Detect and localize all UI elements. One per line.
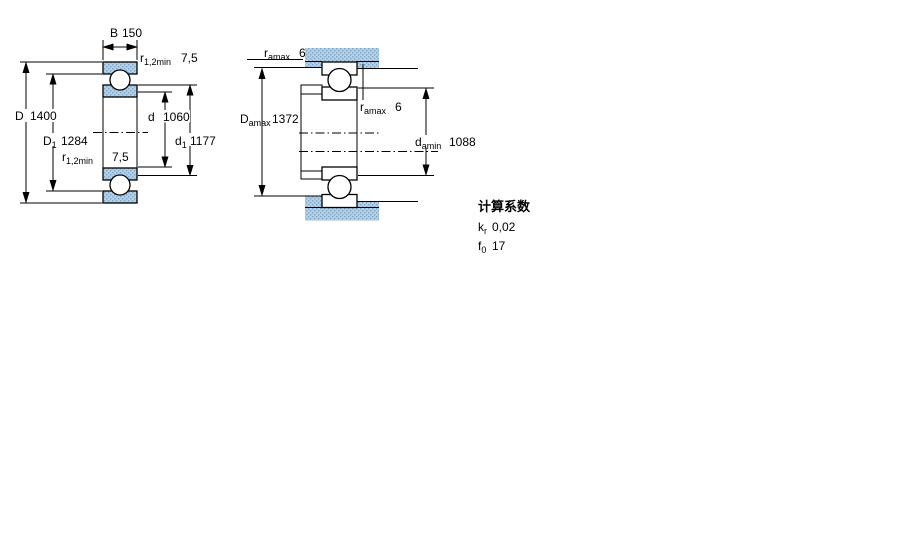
bearing-drawing-canvas: B 150 r1,2min 7,5 D 1400 D1 1284 d 1060 …	[0, 0, 900, 560]
value-D: 1400	[30, 109, 57, 123]
ball-top-right	[328, 69, 351, 92]
value-r12min-bottom: 7,5	[112, 150, 129, 164]
label-ramax-top: ramax	[264, 46, 291, 62]
right-diagram-abutment: ramax 6 Damax 1372 ramax 6 damin 1088	[240, 46, 476, 221]
bearing-rings-left	[93, 62, 148, 203]
label-r12min-top: r1,2min	[140, 51, 171, 67]
value-ramax-top: 6	[299, 46, 306, 60]
factor-f0-label: f0	[478, 239, 486, 255]
housing-bottom-left-step	[305, 196, 322, 208]
factor-kr-label: kr	[478, 220, 487, 236]
housing-top-left-step	[305, 62, 322, 68]
label-D: D	[15, 109, 24, 123]
value-d1: 1177	[190, 134, 216, 148]
value-B: 150	[122, 26, 142, 40]
factor-kr-value: 0,02	[492, 220, 516, 234]
factor-f0-value: 17	[492, 239, 506, 253]
value-D1: 1284	[61, 134, 88, 148]
shaft-shoulder-top	[301, 85, 322, 94]
housing-bottom-main	[305, 208, 379, 221]
housing-top-right-step	[356, 62, 379, 69]
bearing-dimension-page: B 150 r1,2min 7,5 D 1400 D1 1284 d 1060 …	[0, 0, 900, 560]
factors-title: 计算系数	[478, 199, 531, 214]
label-d: d	[148, 110, 155, 124]
label-r12min-bottom: r1,2min	[62, 150, 93, 166]
left-diagram-bearing-section: B 150 r1,2min 7,5 D 1400 D1 1284 d 1060 …	[13, 26, 220, 203]
bearing-rings-right	[322, 62, 357, 208]
ball-top	[110, 70, 130, 90]
housing-top-main	[305, 48, 379, 62]
shaft-shoulder-bottom	[301, 171, 322, 179]
value-r12min-top: 7,5	[181, 51, 198, 65]
label-ramax-mid: ramax	[360, 100, 387, 116]
label-B: B	[110, 26, 118, 40]
value-Damax: 1372	[272, 112, 299, 126]
value-damin: 1088	[449, 135, 476, 149]
ball-bottom	[110, 175, 130, 195]
housing-bottom-right-step	[356, 202, 379, 208]
calculation-factors: 计算系数 kr 0,02 f0 17	[478, 199, 531, 255]
value-d: 1060	[163, 110, 190, 124]
value-ramax-mid: 6	[395, 100, 402, 114]
ball-bottom-right	[328, 176, 351, 199]
label-Damax: Damax	[240, 112, 271, 128]
